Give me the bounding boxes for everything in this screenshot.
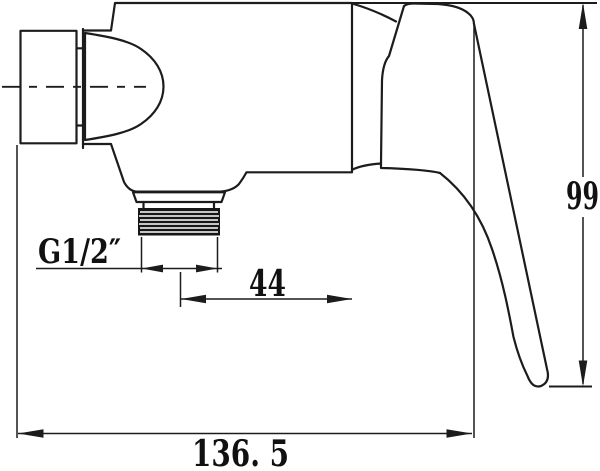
escutcheon-bottom [352, 164, 440, 174]
technical-drawing-page: G1/2″ 44 99 136. 5 [0, 0, 600, 471]
arrow-left-136 [18, 429, 44, 437]
outlet-flange [133, 192, 225, 202]
arrow-right-44 [327, 295, 352, 303]
outlet-offset-label: 44 [249, 263, 286, 305]
arrow-left-thread [142, 265, 164, 273]
arrow-up-99 [579, 3, 588, 29]
handle-knob [381, 4, 474, 164]
arrow-left-44 [181, 295, 206, 303]
overall-width-label: 136. 5 [192, 433, 289, 471]
body-profile [83, 3, 352, 192]
outlet-thread [138, 208, 220, 236]
thread-size-label: G1/2″ [38, 232, 121, 272]
arrow-right-thread [196, 265, 218, 273]
arrow-right-136 [447, 429, 473, 437]
faucet-outline [21, 3, 548, 386]
arrow-down-99 [579, 361, 588, 387]
drawing-svg: G1/2″ 44 99 136. 5 [0, 0, 600, 471]
escutcheon-top [352, 4, 396, 22]
handle-lever [440, 24, 548, 386]
dimensions [17, 3, 597, 438]
body-height-label: 99 [566, 174, 599, 218]
arrowheads [18, 3, 587, 438]
